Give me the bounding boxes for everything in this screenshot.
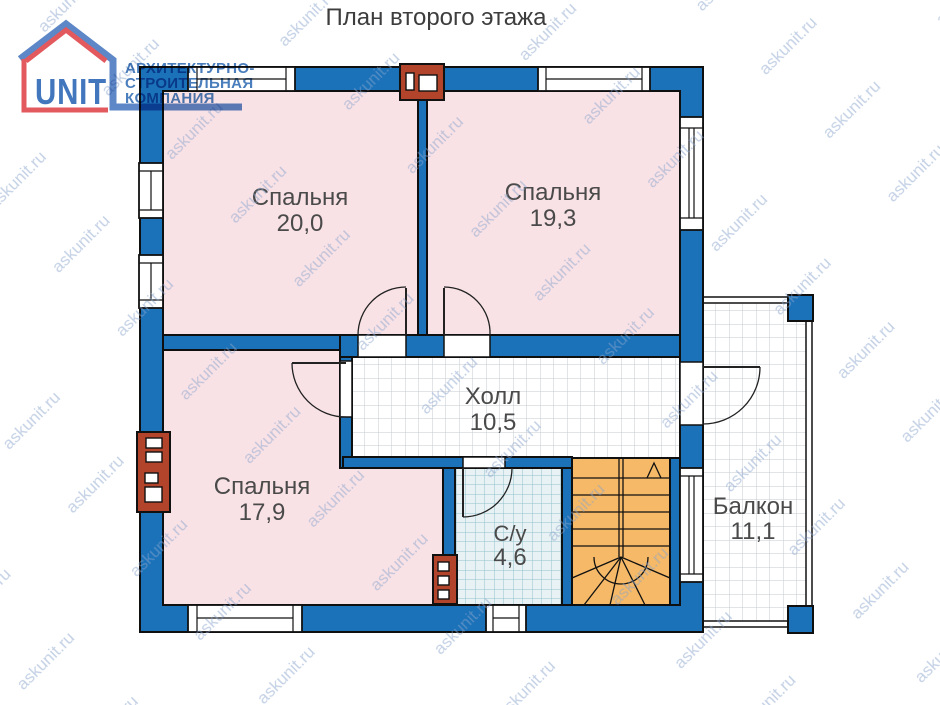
logo-brand-text: UNIT — [35, 71, 107, 112]
floor-plan-page: askunit.ru План второго этажа — [0, 0, 940, 705]
logo-tagline-3: КОМПАНИЯ — [125, 90, 215, 107]
floor-plan-canvas: askunit.ru План второго этажа — [0, 0, 940, 705]
